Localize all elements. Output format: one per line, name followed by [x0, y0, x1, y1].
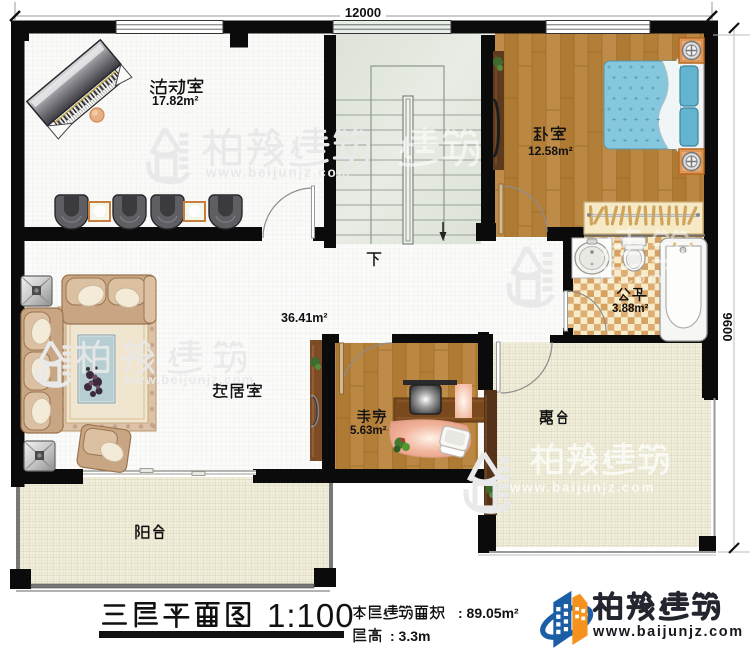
svg-text:9600: 9600 — [720, 313, 735, 342]
svg-text:www.baijunjz.com: www.baijunjz.com — [592, 624, 744, 640]
svg-text:www.baijunjz.com: www.baijunjz.com — [509, 480, 655, 495]
svg-text:1:100: 1:100 — [267, 597, 355, 634]
svg-text:www.beijunjz.com: www.beijunjz.com — [205, 165, 351, 180]
svg-text:36.41m²: 36.41m² — [281, 311, 328, 325]
svg-text:12.58m²: 12.58m² — [528, 144, 573, 158]
svg-text:: 3.3m: : 3.3m — [390, 628, 430, 644]
svg-text:5.63m²: 5.63m² — [350, 425, 387, 437]
svg-text:17.82m²: 17.82m² — [152, 94, 199, 108]
svg-text:12000: 12000 — [345, 5, 381, 20]
svg-text:: 89.05m²: : 89.05m² — [458, 605, 519, 621]
svg-text:3.88m²: 3.88m² — [612, 303, 649, 315]
svg-text:jz.com: jz.com — [599, 270, 665, 287]
